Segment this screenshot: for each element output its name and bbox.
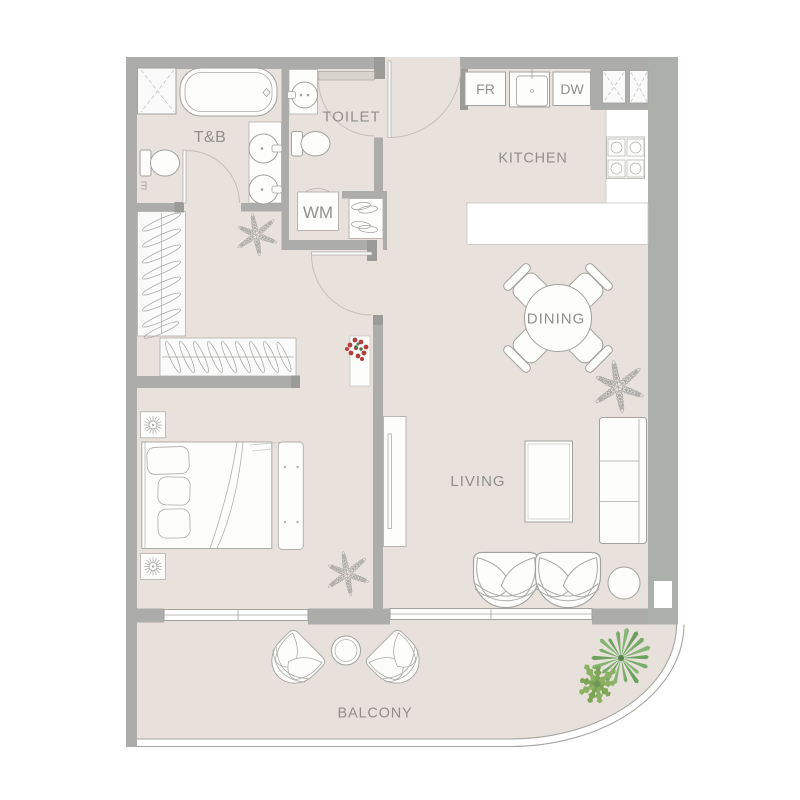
svg-text:DW: DW [560, 81, 584, 97]
svg-text:FR: FR [476, 81, 495, 97]
svg-text:TOILET: TOILET [322, 109, 380, 126]
svg-text:LIVING: LIVING [450, 473, 505, 490]
svg-text:WM: WM [303, 203, 333, 222]
svg-text:KITCHEN: KITCHEN [498, 151, 567, 167]
svg-text:BALCONY: BALCONY [338, 706, 413, 722]
svg-text:DINING: DINING [527, 311, 586, 328]
svg-text:T&B: T&B [194, 129, 227, 146]
